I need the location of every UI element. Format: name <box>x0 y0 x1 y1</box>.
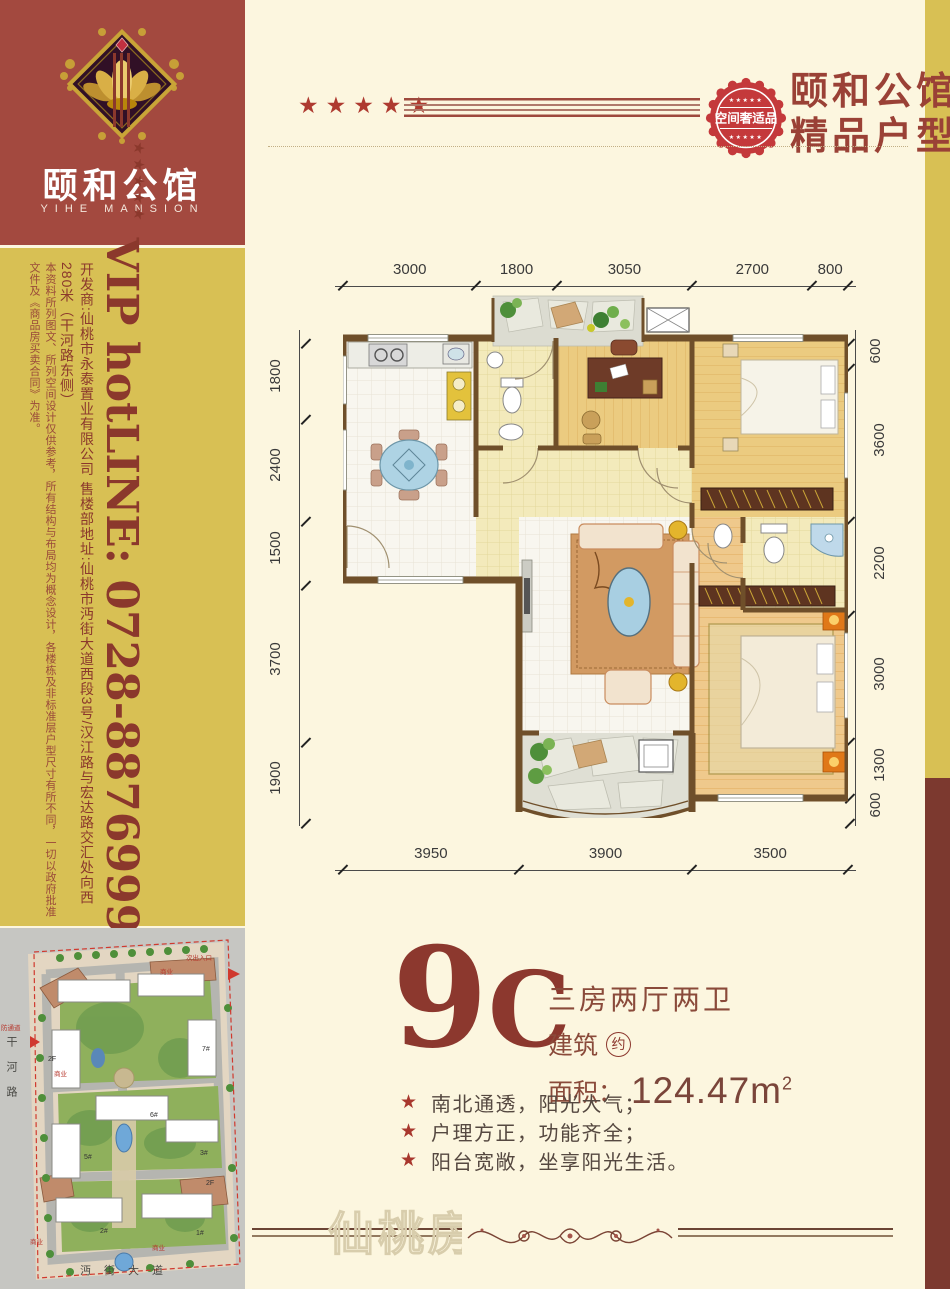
dimension-label: 3600 <box>871 423 888 456</box>
developer-address-text: 开发商:仙桃市永泰置业有限公司 售楼部地址:仙桃市沔街大道西段3号/汉江路与宏达… <box>57 262 97 918</box>
sitemap-label: 沔街大道 <box>80 1266 176 1277</box>
feature-text: 南北通透，阳光大气； <box>431 1088 646 1117</box>
disclaimer-text: 本资料所列图文、所列空间设计仅供参考，所有结构与布局均为概念设计，各楼栋及非标准… <box>26 262 58 922</box>
dimension-tick <box>845 818 855 828</box>
star-bullet-icon: ★ <box>400 1091 417 1114</box>
quality-seal-icon: 空间奢适品 ★★★★★ ★★★★★ <box>703 75 789 161</box>
sitemap-label: 3# <box>200 1150 208 1157</box>
feature-list: ★南北通透，阳光大气；★户理方正，功能齐全；★阳台宽敞，坐享阳光生活。 <box>400 1088 689 1175</box>
dimension-tick <box>300 738 310 748</box>
dimension-tick <box>300 580 310 590</box>
dimension-label: 3000 <box>871 657 888 690</box>
dimension-label: 1500 <box>267 532 284 565</box>
room-balcony <box>519 733 692 818</box>
sitemap-label: 1# <box>196 1230 204 1237</box>
dimension-label: 2200 <box>871 546 888 579</box>
sitemap-label: 商业 <box>30 1240 43 1247</box>
dimension-tick <box>300 415 310 425</box>
dotted-divider <box>268 146 908 147</box>
sitemap-label: 7# <box>202 1046 210 1053</box>
logo-title: 颐和公馆 <box>0 158 245 209</box>
dimension-label: 1300 <box>871 748 888 781</box>
area-word-1: 建筑 <box>548 1026 598 1062</box>
dimension-label: 3500 <box>753 845 786 862</box>
sitemap-label: 6# <box>150 1112 158 1119</box>
sitemap-label: 5# <box>84 1154 92 1161</box>
footer-flourish-icon <box>462 1208 678 1264</box>
feature-item: ★阳台宽敞，坐享阳光生活。 <box>400 1146 689 1175</box>
dimension-label: 3000 <box>393 261 426 278</box>
logo-subtitle: YIHE MANSION <box>0 203 245 215</box>
sitemap-label: 商业 <box>54 1072 67 1079</box>
sitemap-label: 2# <box>100 1228 108 1235</box>
feature-item: ★南北通透，阳光大气； <box>400 1088 689 1117</box>
dimension-tick <box>300 818 310 828</box>
dimension-strip-left: 18002400150037001900 <box>270 338 300 818</box>
seal-text: 空间奢适品 <box>715 111 778 126</box>
vip-hotline-text: VIP hotLINE: 0728-8876999 <box>96 238 147 935</box>
dimension-label: 3900 <box>589 845 622 862</box>
unit-code-9: 9 <box>392 916 488 1079</box>
approx-badge: 约 <box>606 1032 631 1057</box>
star-bullet-icon: ★ <box>400 1120 417 1143</box>
right-red-strip <box>925 778 950 1289</box>
dimension-label: 3050 <box>608 261 641 278</box>
feature-text: 阳台宽敞，坐享阳光生活。 <box>431 1146 689 1175</box>
dimension-label: 1900 <box>267 761 284 794</box>
star-bullet-icon: ★ <box>400 1149 417 1172</box>
unit-code: 9C <box>392 938 571 1070</box>
dimension-label: 3950 <box>414 845 447 862</box>
seal-stars-top: ★★★★★ <box>729 97 763 104</box>
dimension-label: 800 <box>818 261 843 278</box>
dimension-label: 600 <box>867 793 884 818</box>
sitemap-label: 2F <box>206 1180 214 1187</box>
dimension-label: 600 <box>867 338 884 363</box>
site-plan-map: 干河路沔街大道次出入口防通道1#2#3#5#6#7#商业商业商业商业2F2F <box>0 928 245 1289</box>
dimension-label: 2400 <box>267 449 284 482</box>
feature-item: ★户理方正，功能齐全； <box>400 1117 689 1146</box>
sitemap-label: 商业 <box>160 970 173 977</box>
seal-stars-bottom: ★★★★★ <box>729 134 763 141</box>
dimension-tick <box>300 338 310 348</box>
unit-layout-type: 三房两厅两卫 <box>548 978 793 1018</box>
floorplan <box>343 293 848 818</box>
dimension-strip-right: 6003600220030001300600 <box>855 338 885 818</box>
feature-text: 户理方正，功能齐全； <box>431 1117 646 1146</box>
sitemap-label: 次出入口 <box>186 956 212 963</box>
dimension-label: 1800 <box>500 261 533 278</box>
dimension-label: 2700 <box>736 261 769 278</box>
site-plan-drawing <box>0 928 245 1289</box>
flyer-page: 颐和公馆 YIHE MANSION ★★★★★ VIP hotLINE: 072… <box>0 0 950 1289</box>
sitemap-label: 商业 <box>152 1246 165 1253</box>
sitemap-label: 2F <box>48 1056 56 1063</box>
header-quad-lines <box>404 98 700 117</box>
header-title-line1: 颐和公馆 <box>790 70 950 115</box>
triple-line-ornament <box>113 53 130 127</box>
sitemap-label: 干河路 <box>5 1036 16 1111</box>
dimension-strip-top: 3000180030502700800 <box>343 256 848 292</box>
dimension-label: 1800 <box>267 360 284 393</box>
dimension-label: 3700 <box>267 642 284 675</box>
header-title-line2: 精品户型 <box>790 115 950 160</box>
stars-ornament: ★★★★★ <box>131 141 149 223</box>
dimension-strip-bottom: 395039003500 <box>343 842 848 876</box>
sitemap-label: 防通道 <box>1 1026 21 1033</box>
dimension-tick <box>300 517 310 527</box>
